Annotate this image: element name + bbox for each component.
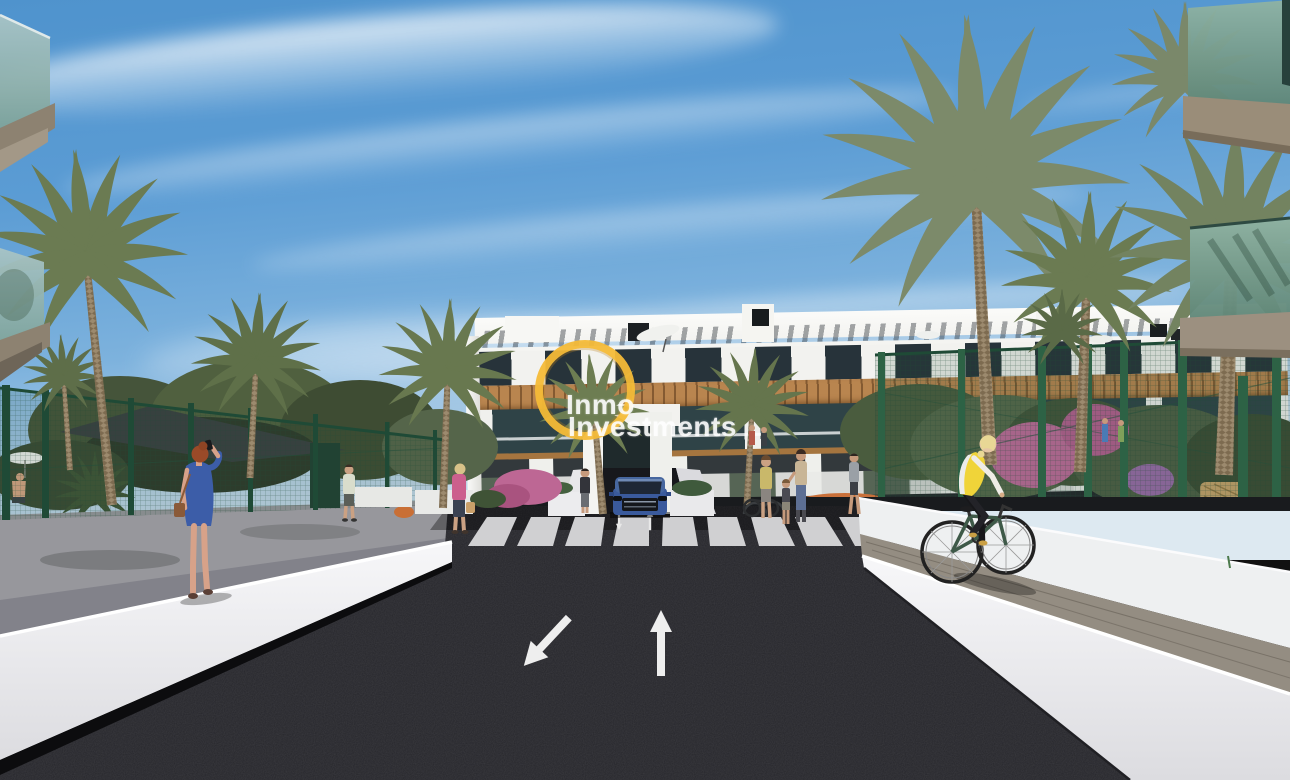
hedge bbox=[672, 480, 712, 496]
orange-bush bbox=[394, 506, 414, 518]
blue-suv bbox=[609, 477, 671, 518]
roof-stair-box bbox=[505, 316, 559, 342]
woman-at-entrance bbox=[580, 469, 590, 514]
roof-parasol bbox=[916, 331, 940, 339]
tree-shadow bbox=[240, 524, 360, 540]
headlight bbox=[613, 496, 622, 501]
shrub bbox=[470, 490, 506, 508]
windshield bbox=[618, 480, 662, 494]
roof-vent bbox=[1150, 324, 1167, 337]
low-wall bbox=[355, 487, 412, 507]
tree-shadow bbox=[40, 550, 180, 570]
balcony-top-left bbox=[0, 15, 55, 172]
handbag bbox=[174, 503, 185, 517]
side-mirror bbox=[666, 492, 671, 496]
headlight bbox=[658, 496, 667, 501]
balcony-mid-right bbox=[1180, 218, 1290, 358]
roof-vent bbox=[752, 309, 769, 326]
roof-parasol bbox=[1089, 335, 1113, 343]
grille bbox=[622, 498, 658, 511]
watermark-line2: Investments bbox=[568, 411, 737, 443]
side-mirror bbox=[609, 492, 614, 496]
tote-bag bbox=[466, 502, 475, 513]
zebra-crosswalk bbox=[468, 517, 891, 546]
scene-overlay bbox=[0, 0, 1290, 780]
rendered-street-scene: Inmo Investments bbox=[0, 0, 1290, 780]
balcony-top-right bbox=[1183, 0, 1290, 154]
